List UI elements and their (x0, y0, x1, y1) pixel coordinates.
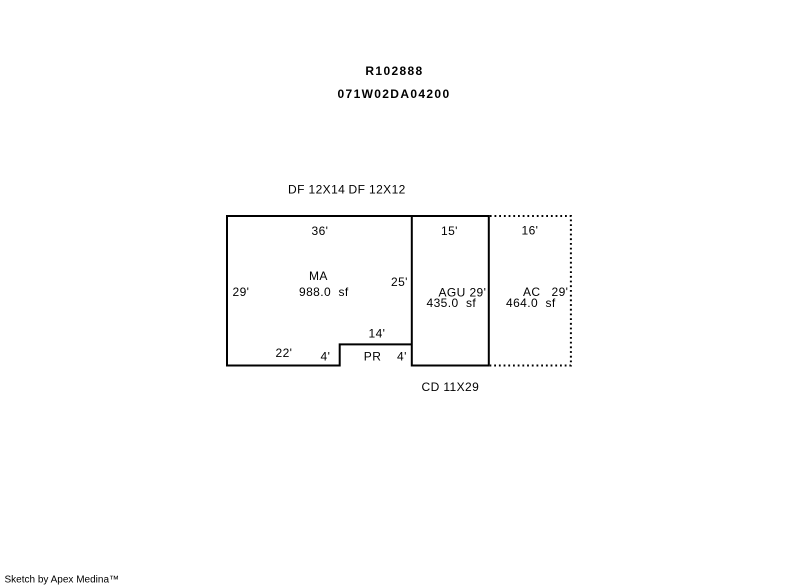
svg-text:15': 15' (441, 224, 458, 238)
svg-text:Sketch by Apex Medina™: Sketch by Apex Medina™ (5, 575, 120, 586)
svg-text:DF 12X14: DF 12X14 (288, 183, 345, 197)
svg-text:435.0 sf: 435.0 sf (427, 296, 477, 310)
svg-text:29': 29' (233, 285, 250, 299)
svg-text:PR: PR (364, 350, 381, 364)
svg-text:464.0 sf: 464.0 sf (506, 296, 556, 310)
svg-text:MA: MA (309, 269, 328, 283)
svg-text:14': 14' (369, 327, 386, 341)
svg-text:4': 4' (397, 350, 407, 364)
svg-text:22': 22' (276, 346, 293, 360)
svg-text:988.0 sf: 988.0 sf (299, 285, 349, 299)
svg-text:071W02DA04200: 071W02DA04200 (338, 87, 451, 101)
svg-text:25': 25' (391, 275, 408, 289)
svg-text:CD 11X29: CD 11X29 (422, 380, 480, 394)
svg-text:16': 16' (522, 224, 539, 238)
svg-text:DF 12X12: DF 12X12 (349, 183, 406, 197)
svg-text:4': 4' (321, 350, 331, 364)
svg-text:R102888: R102888 (365, 64, 423, 78)
svg-text:36': 36' (312, 224, 329, 238)
